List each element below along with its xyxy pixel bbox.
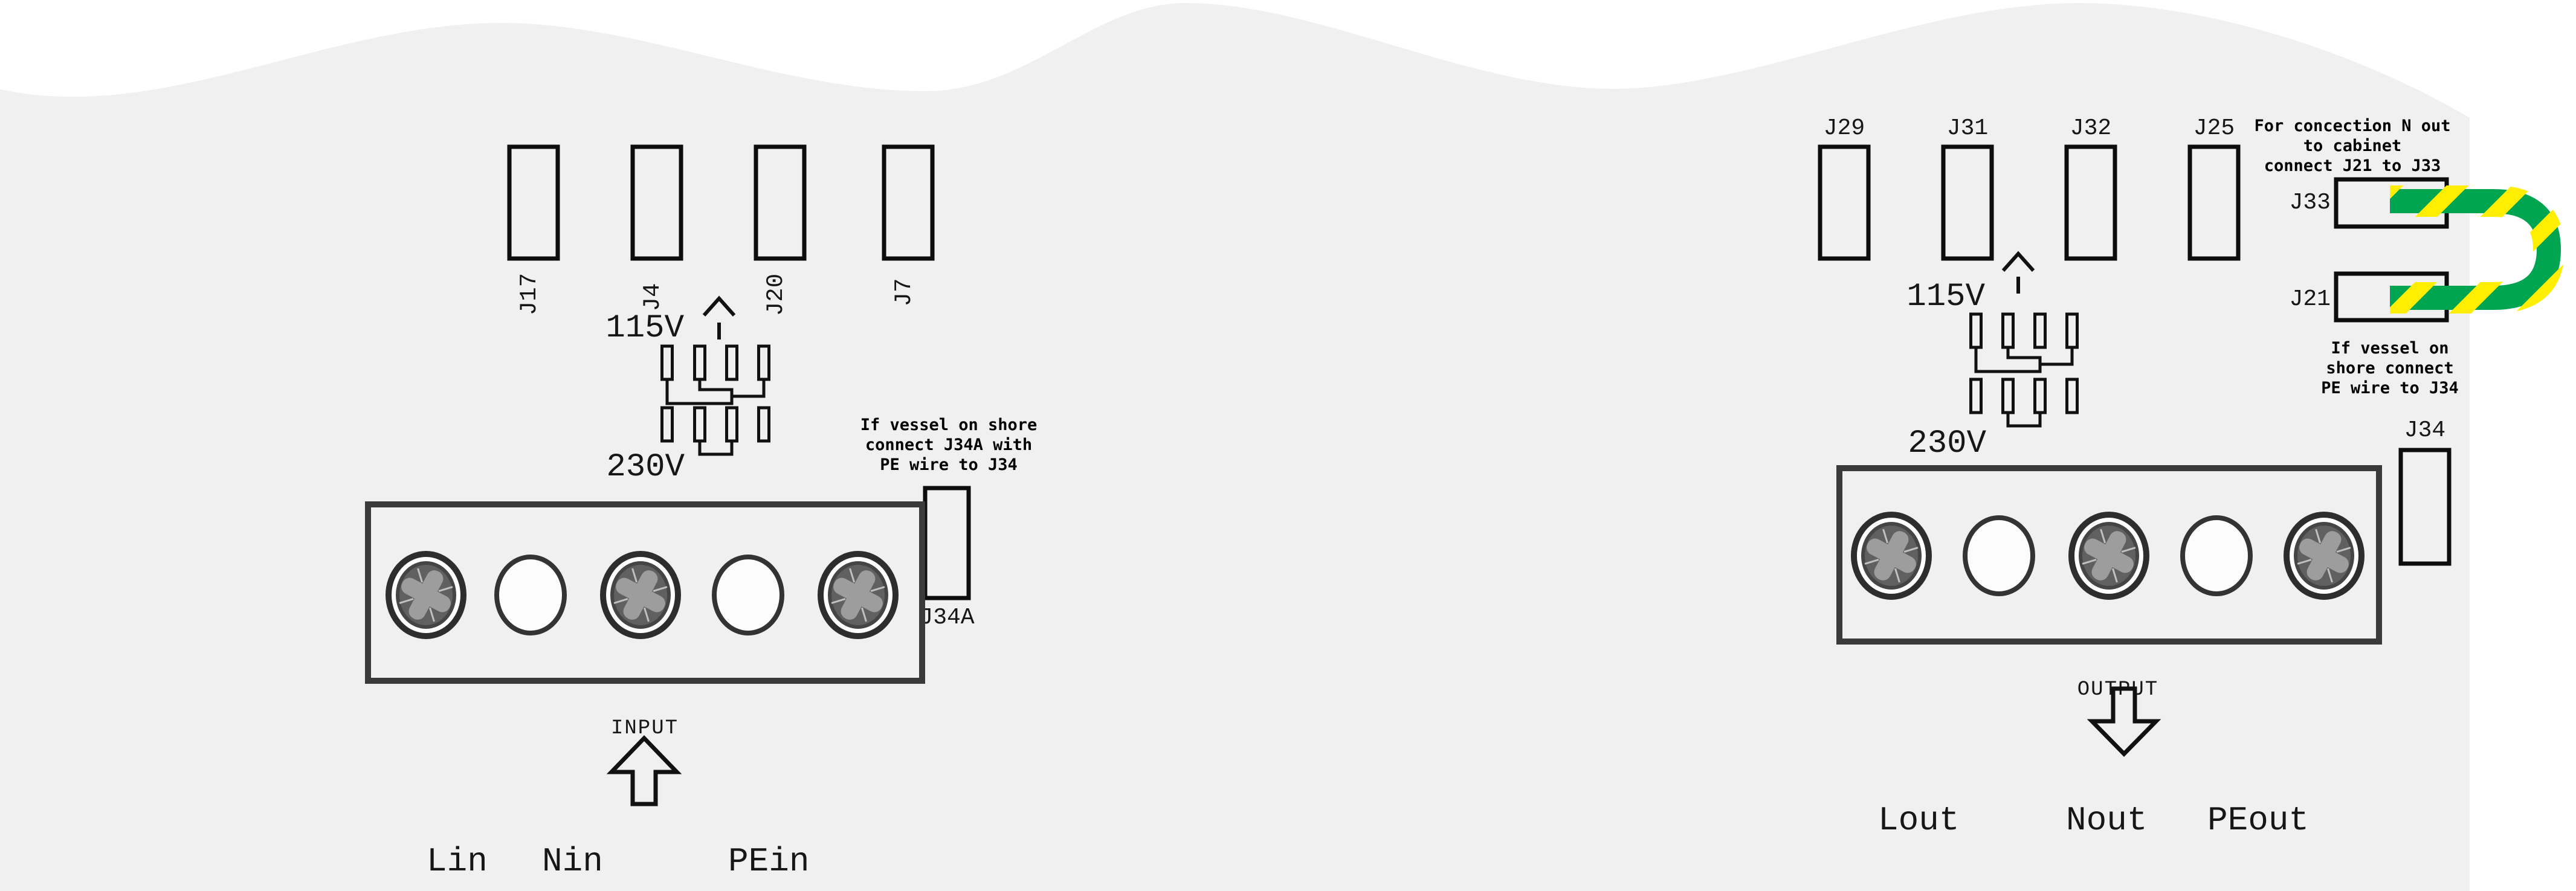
- note-line: shore connect: [2326, 359, 2453, 378]
- terminal-hole: [714, 557, 782, 633]
- voltage-230v-label: 230V: [1908, 425, 1986, 462]
- connector-j17-label: J17: [516, 273, 543, 315]
- wire-label-nout: Nout: [2066, 801, 2147, 840]
- pcb-wiring-diagram: J17 J4 J20 J7 115V 230V If vessel on: [0, 0, 2576, 891]
- connector-j29-label: J29: [1824, 115, 1865, 141]
- shore-note-left: If vessel on shore connect J34A with PE …: [860, 416, 1038, 474]
- screw-terminal: [389, 554, 463, 636]
- connector-j33-label: J33: [2290, 190, 2331, 216]
- connector-j34-label: J34: [2404, 417, 2445, 443]
- connector-j4-label: J4: [639, 283, 666, 312]
- voltage-115v-label: 115V: [605, 310, 684, 347]
- connector-j7-label: J7: [891, 278, 917, 307]
- wire-label-peout: PEout: [2207, 801, 2309, 840]
- note-line: to cabinet: [2303, 137, 2402, 155]
- note-line: If vessel on shore: [860, 416, 1038, 434]
- note-line: connect J34A with: [865, 436, 1032, 454]
- note-line: PE wire to J34: [2321, 379, 2459, 397]
- wire-label-nin: Nin: [542, 842, 603, 881]
- connector-j34a-label: J34A: [919, 605, 974, 631]
- terminal-hole: [497, 557, 564, 633]
- connector-j21-label: J21: [2290, 286, 2331, 312]
- wire-label-lin: Lin: [427, 842, 488, 881]
- diagram-canvas: J17 J4 J20 J7 115V 230V If vessel on: [0, 0, 2576, 891]
- screw-terminal: [2071, 515, 2146, 597]
- shore-note-right: If vessel on shore connect PE wire to J3…: [2321, 339, 2459, 397]
- connector-j20-label: J20: [763, 274, 789, 316]
- note-line: For concection N out: [2254, 117, 2450, 135]
- connector-j31-label: J31: [1947, 115, 1988, 141]
- terminal-hole: [1965, 518, 2033, 594]
- terminal-hole: [2183, 518, 2250, 594]
- wire-label-pein: PEin: [728, 842, 809, 881]
- voltage-230v-label: 230V: [606, 449, 685, 486]
- screw-terminal: [821, 554, 896, 636]
- screw-terminal: [1854, 515, 1929, 597]
- voltage-115v-label: 115V: [1906, 278, 1985, 315]
- screw-terminal: [603, 554, 678, 636]
- screw-terminal: [2287, 515, 2361, 597]
- connector-j32-label: J32: [2070, 115, 2111, 141]
- note-line: PE wire to J34: [880, 455, 1018, 474]
- wire-label-lout: Lout: [1878, 801, 1959, 840]
- note-line: If vessel on: [2331, 339, 2448, 358]
- note-line: connect J21 to J33: [2264, 156, 2441, 175]
- connector-j25-label: J25: [2193, 115, 2235, 141]
